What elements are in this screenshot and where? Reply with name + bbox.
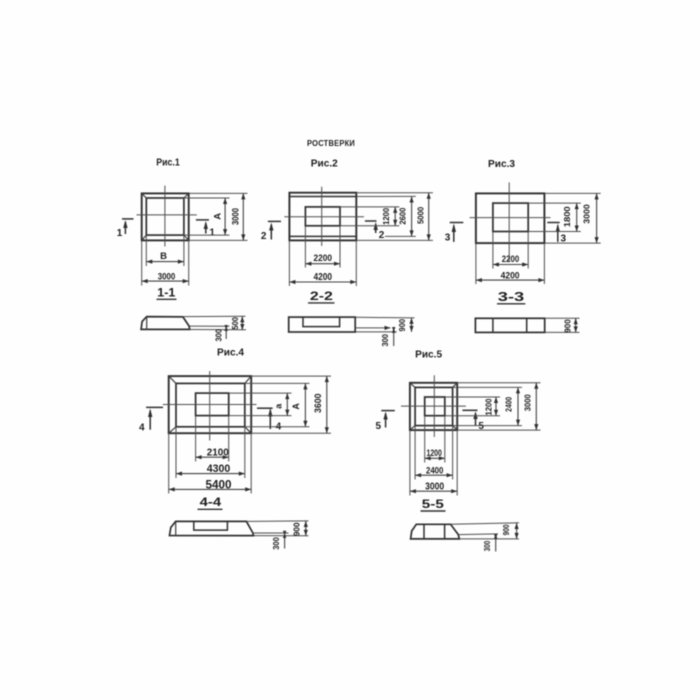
svg-text:4200: 4200 [314,271,333,283]
svg-text:Рис.3: Рис.3 [488,158,515,170]
svg-text:2400: 2400 [504,397,514,412]
svg-text:1200: 1200 [381,208,391,225]
svg-text:1: 1 [209,228,215,239]
svg-text:2: 2 [261,231,267,242]
svg-text:А: А [212,213,223,220]
svg-text:3000: 3000 [582,204,592,224]
svg-text:2200: 2200 [314,253,333,264]
svg-text:1: 1 [117,228,123,239]
svg-text:4300: 4300 [207,463,231,475]
svg-text:900: 900 [292,522,302,536]
svg-text:2100: 2100 [207,447,229,459]
svg-text:А: А [291,403,301,410]
svg-text:5-5: 5-5 [422,499,445,511]
svg-text:В: В [160,251,167,262]
svg-text:РОСТВЕРКИ: РОСТВЕРКИ [307,138,355,148]
svg-text:1200: 1200 [426,448,442,458]
svg-text:1800: 1800 [562,206,572,227]
svg-text:300: 300 [482,541,492,552]
svg-text:3000: 3000 [158,272,176,283]
svg-text:1200: 1200 [484,398,494,415]
svg-text:5000: 5000 [416,207,426,224]
svg-text:2400: 2400 [426,465,444,476]
svg-text:2-2: 2-2 [310,291,333,303]
svg-text:3000: 3000 [425,481,444,492]
svg-text:4200: 4200 [501,270,520,281]
svg-text:3000: 3000 [231,208,241,225]
svg-text:900: 900 [501,524,511,535]
svg-text:500: 500 [230,317,240,330]
svg-text:300: 300 [214,329,224,342]
svg-text:Рис.5: Рис.5 [415,349,442,361]
svg-text:3: 3 [445,233,451,244]
svg-text:300: 300 [271,537,281,550]
svg-text:2600: 2600 [397,207,407,224]
svg-text:300: 300 [380,334,390,347]
svg-text:4: 4 [139,422,145,433]
svg-text:Рис.2: Рис.2 [311,158,338,170]
svg-text:3600: 3600 [313,393,323,413]
svg-text:5400: 5400 [206,479,232,491]
svg-text:3000: 3000 [522,394,532,411]
svg-text:4-4: 4-4 [200,497,222,509]
svg-text:1-1: 1-1 [157,288,176,300]
svg-text:2: 2 [379,230,385,241]
svg-text:2200: 2200 [502,254,519,265]
svg-text:5: 5 [376,421,382,432]
svg-text:900: 900 [562,319,572,333]
svg-text:Рис.1: Рис.1 [156,157,180,169]
svg-text:Рис.4: Рис.4 [217,347,244,359]
svg-text:900: 900 [397,319,407,332]
svg-text:3-3: 3-3 [498,289,525,304]
